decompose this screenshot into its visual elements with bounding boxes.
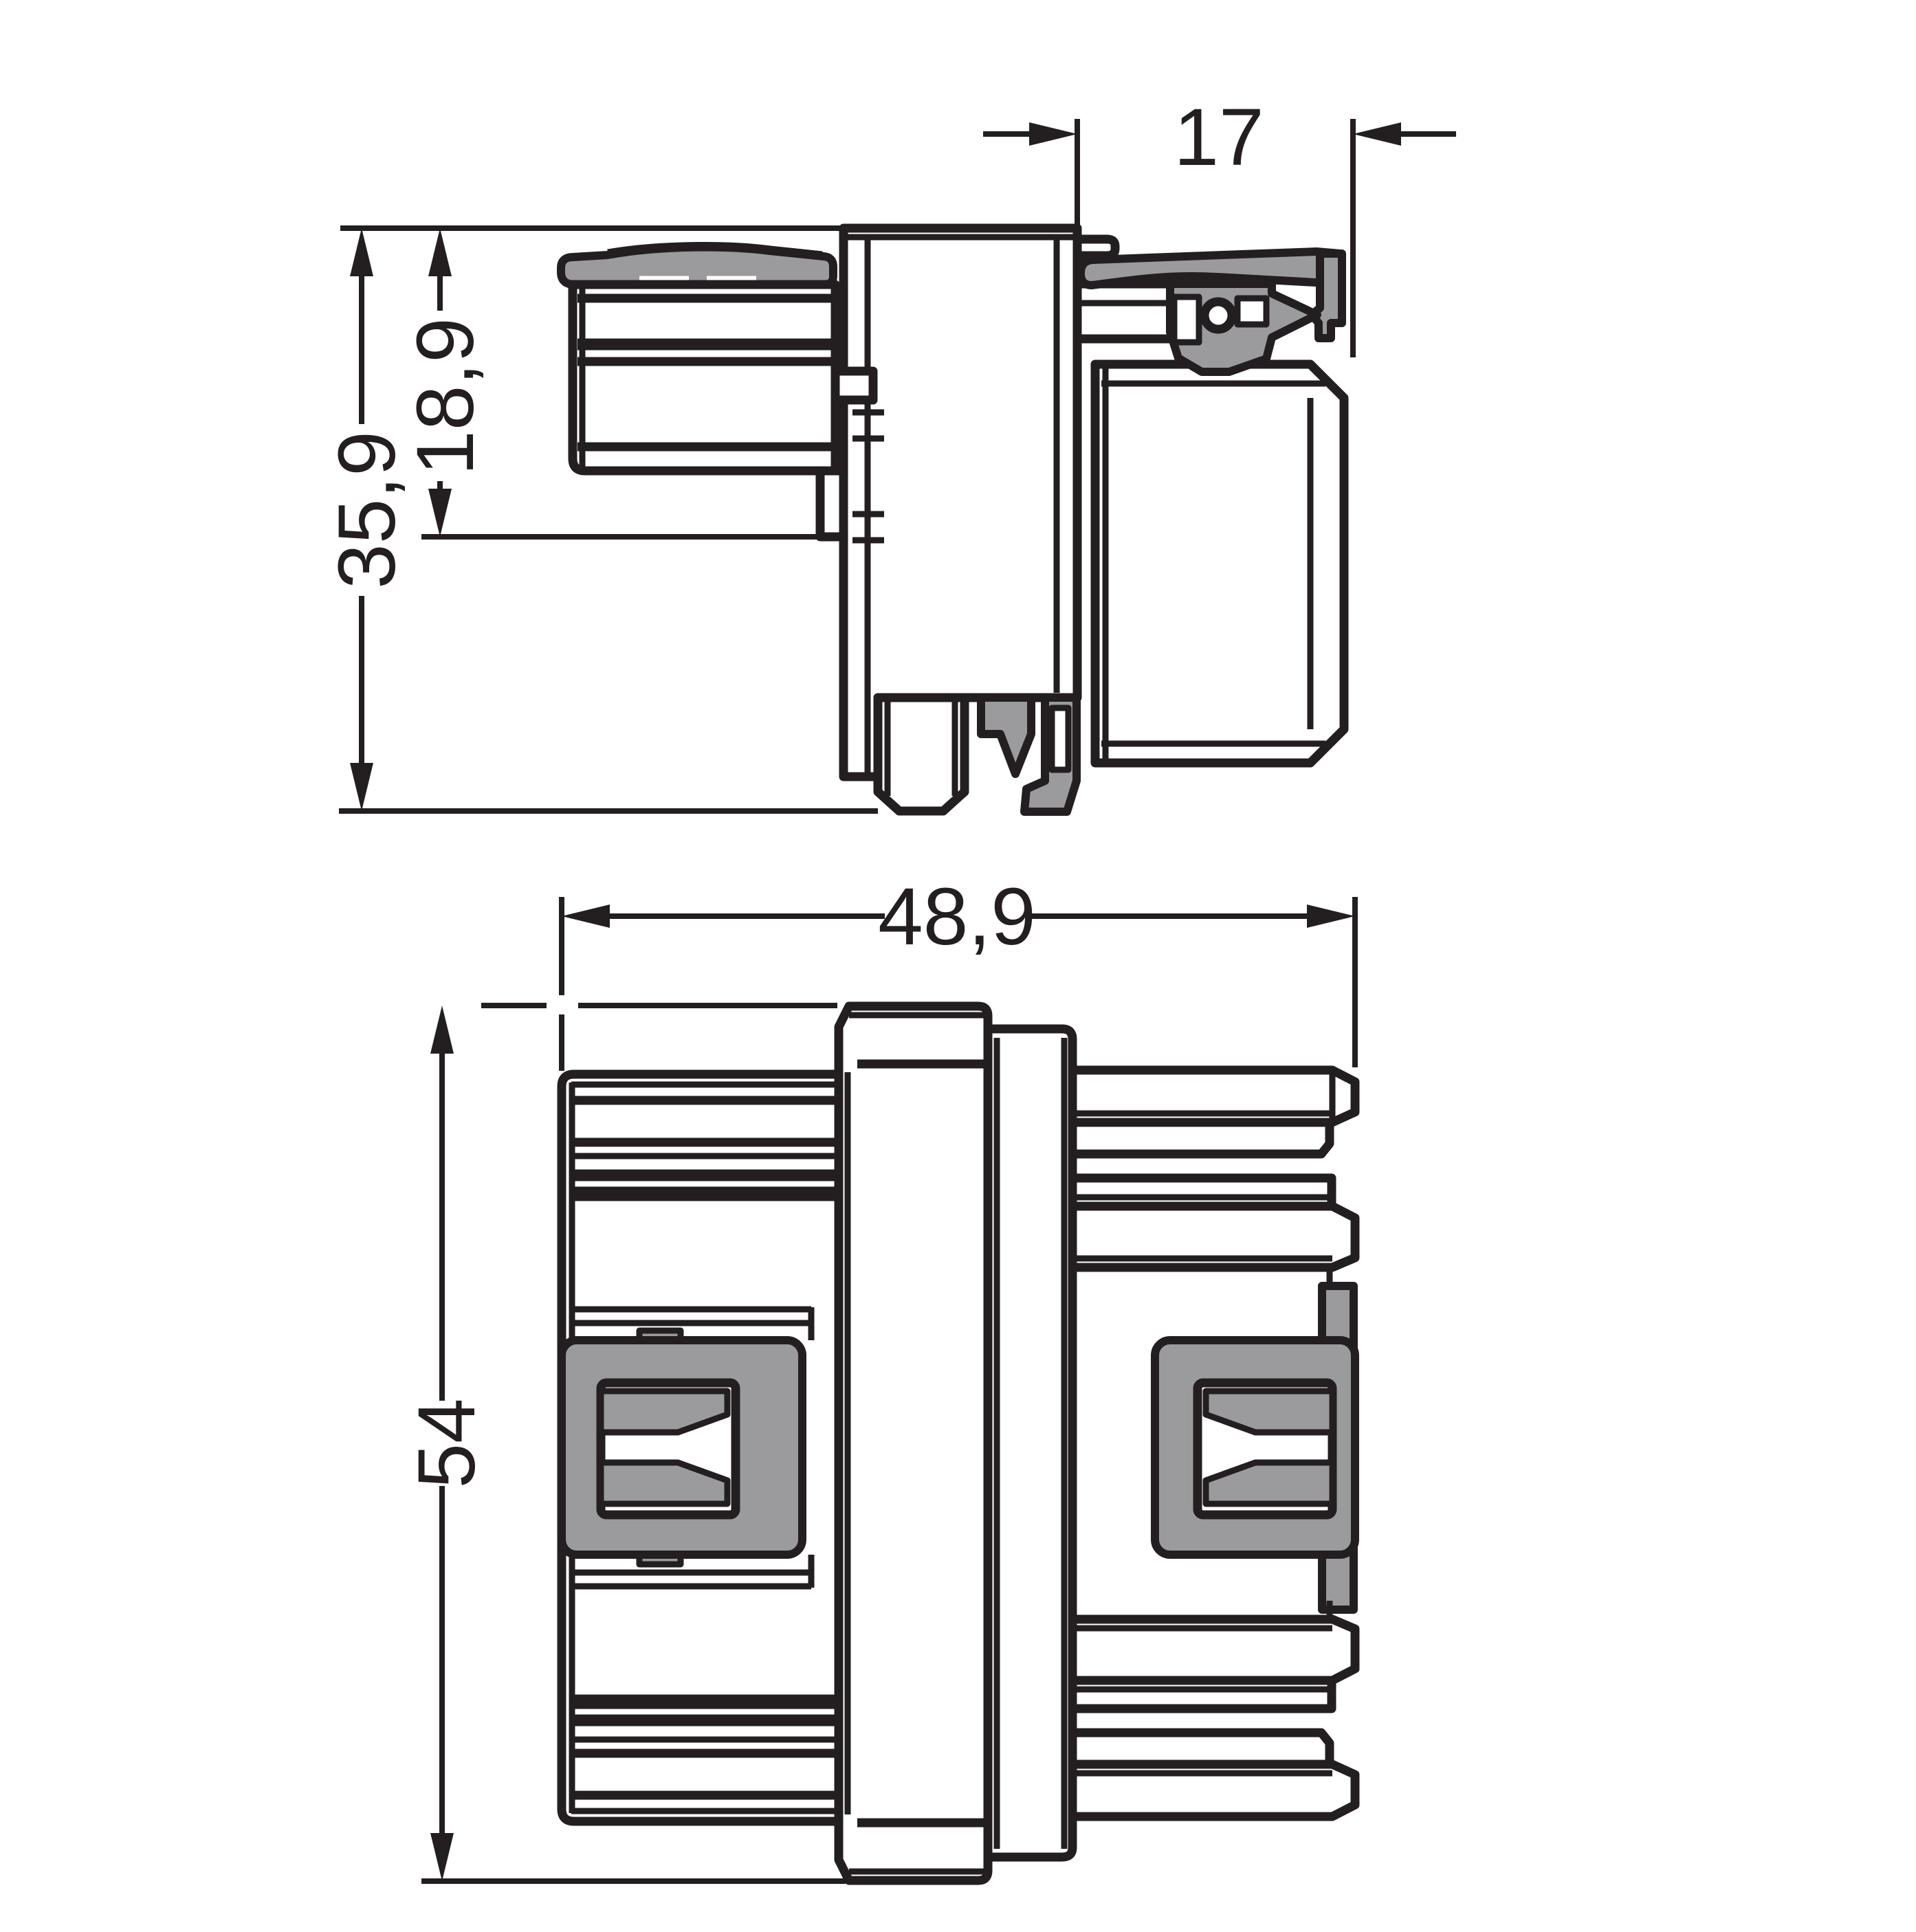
arrowhead-up-icon — [428, 228, 452, 276]
pivot-circle — [1204, 302, 1232, 329]
arrowhead-left-icon — [562, 904, 610, 928]
front-view-body — [562, 1006, 1355, 1880]
right-tab — [1072, 1680, 1332, 1709]
latch-window — [1174, 297, 1199, 342]
front-view: 48,9 54 — [401, 871, 1355, 1881]
arrowhead-up-icon — [430, 1006, 454, 1054]
arrowhead-down-icon — [430, 1833, 454, 1881]
technical-drawing-page: 17 18,9 35,9 — [0, 0, 1916, 1932]
down-latch-slot — [1052, 708, 1068, 770]
arrowhead-down-icon — [428, 489, 452, 537]
latch-end-plate — [1312, 254, 1342, 338]
arrowhead-up-icon — [350, 228, 373, 276]
arrowhead-down-icon — [350, 763, 373, 811]
mounting-block — [1095, 364, 1344, 763]
strain-relief-clip — [561, 247, 833, 285]
socket-joint — [820, 471, 844, 537]
dimension-label: 35,9 — [322, 431, 412, 589]
side-view: 17 18,9 35,9 — [322, 92, 1456, 812]
dimension-label: 48,9 — [878, 871, 1036, 962]
right-tab — [1072, 1122, 1330, 1154]
down-plug — [878, 698, 965, 811]
down-latch-blade — [981, 698, 1031, 774]
right-tab — [1072, 1733, 1330, 1764]
arrowhead-right-icon — [1029, 122, 1077, 146]
dimension-label: 17 — [1174, 92, 1264, 183]
dimension-label: 54 — [401, 1398, 492, 1488]
arrowhead-left-icon — [1353, 122, 1401, 146]
tower-right-nub — [1077, 239, 1115, 256]
connector-dimension-drawing: 17 18,9 35,9 — [0, 0, 1916, 1932]
dimension-label: 18,9 — [400, 318, 491, 476]
side-view-body — [561, 228, 1344, 812]
arrowhead-right-icon — [1307, 904, 1355, 928]
center-panel — [839, 1006, 1072, 1880]
latch-detail — [1237, 298, 1266, 324]
